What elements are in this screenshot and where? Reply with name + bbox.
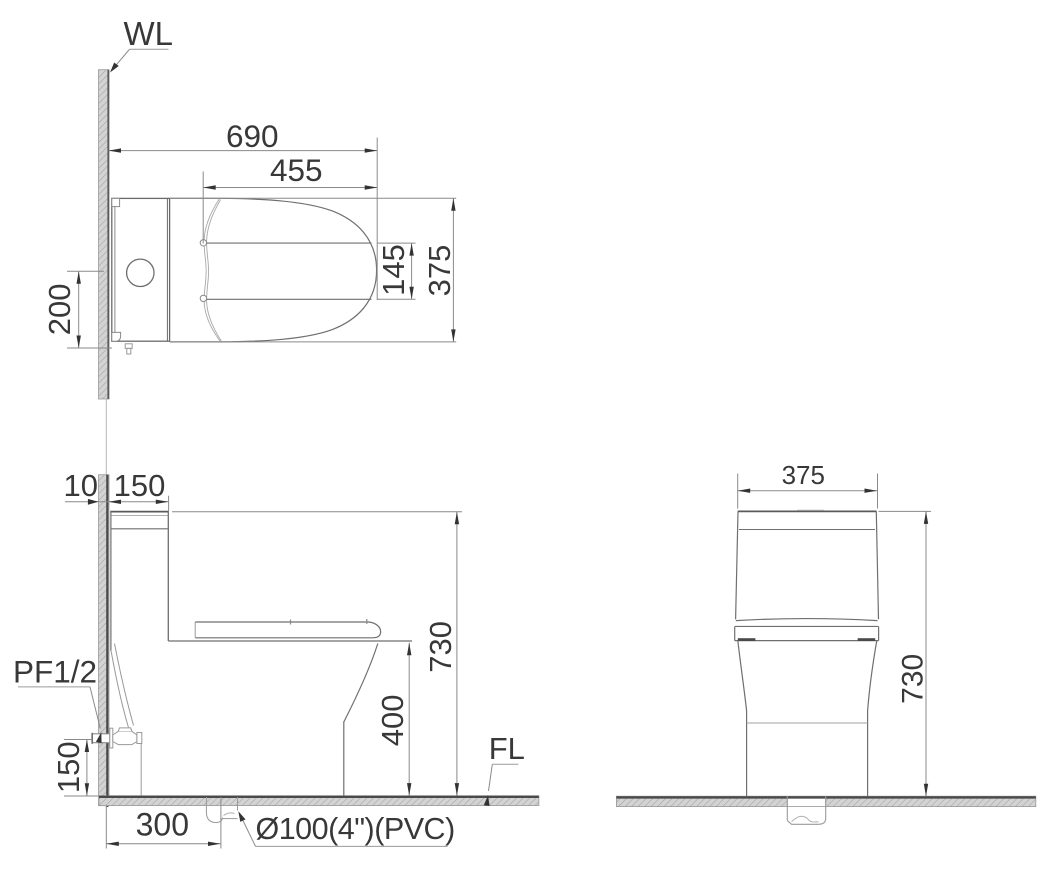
svg-text:150: 150 xyxy=(51,741,86,793)
svg-text:200: 200 xyxy=(42,284,77,336)
svg-text:PF1/2: PF1/2 xyxy=(13,653,97,689)
svg-text:730: 730 xyxy=(897,654,930,704)
svg-text:FL: FL xyxy=(489,731,525,766)
svg-text:300: 300 xyxy=(136,807,189,843)
svg-text:375: 375 xyxy=(782,460,825,490)
svg-text:730: 730 xyxy=(423,621,458,673)
svg-text:455: 455 xyxy=(270,152,323,188)
svg-text:400: 400 xyxy=(375,695,410,747)
svg-text:150: 150 xyxy=(114,468,166,503)
svg-text:690: 690 xyxy=(226,118,279,154)
svg-text:375: 375 xyxy=(422,245,457,297)
svg-text:145: 145 xyxy=(376,244,411,296)
svg-text:Ø100(4")(PVC): Ø100(4")(PVC) xyxy=(256,812,455,846)
svg-text:10: 10 xyxy=(63,468,97,503)
svg-text:WL: WL xyxy=(123,15,173,52)
